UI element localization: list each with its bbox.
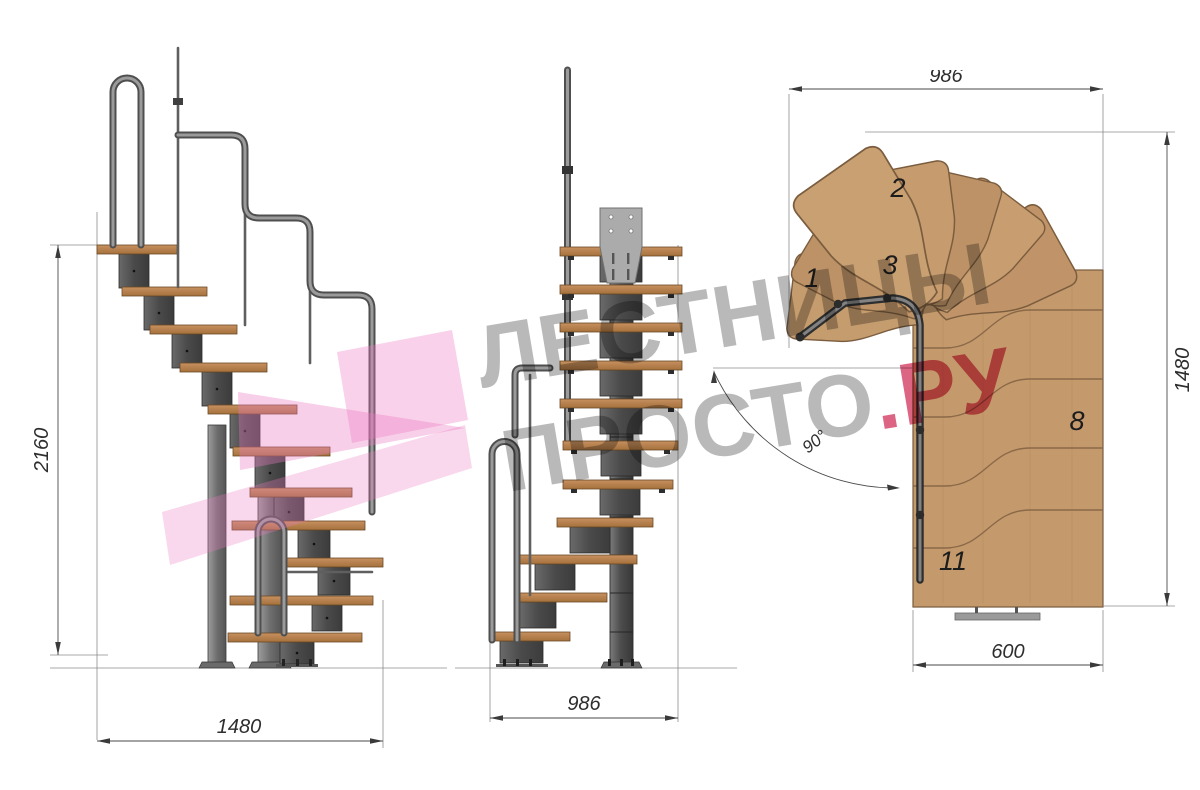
front-steps <box>495 247 682 667</box>
dim-label-1480-plan: 1480 <box>1172 348 1194 393</box>
drawing-canvas: 2160 1480 <box>0 0 1200 790</box>
step-label-3: 3 <box>882 250 897 280</box>
step-label-1: 1 <box>804 263 819 293</box>
side-steps <box>97 245 383 667</box>
dim-label-986-front: 986 <box>567 693 601 715</box>
plan-foot-plate <box>955 607 1040 620</box>
step-label-2: 2 <box>889 173 905 203</box>
dim-label-986-plan: 986 <box>929 70 963 87</box>
dim-label-2160: 2160 <box>31 428 53 474</box>
side-extension-lines <box>50 212 447 748</box>
dim-front-width: 986 <box>490 693 678 721</box>
step-label-8: 8 <box>1069 406 1084 436</box>
mounting-plate <box>600 208 642 283</box>
dim-label-600: 600 <box>991 641 1024 663</box>
side-elevation-view: 2160 1480 <box>30 40 450 760</box>
handrail-loop-top <box>113 78 141 245</box>
dim-label-1480-side: 1480 <box>217 716 262 738</box>
angle-dimension: 90° <box>711 368 913 491</box>
dim-side-length: 1480 <box>97 716 383 744</box>
dim-side-height: 2160 <box>31 245 61 655</box>
angle-label: 90° <box>799 426 831 457</box>
plan-view: 986 1480 600 90° <box>700 70 1200 710</box>
side-railing <box>113 48 372 633</box>
step-label-11: 11 <box>939 546 967 576</box>
